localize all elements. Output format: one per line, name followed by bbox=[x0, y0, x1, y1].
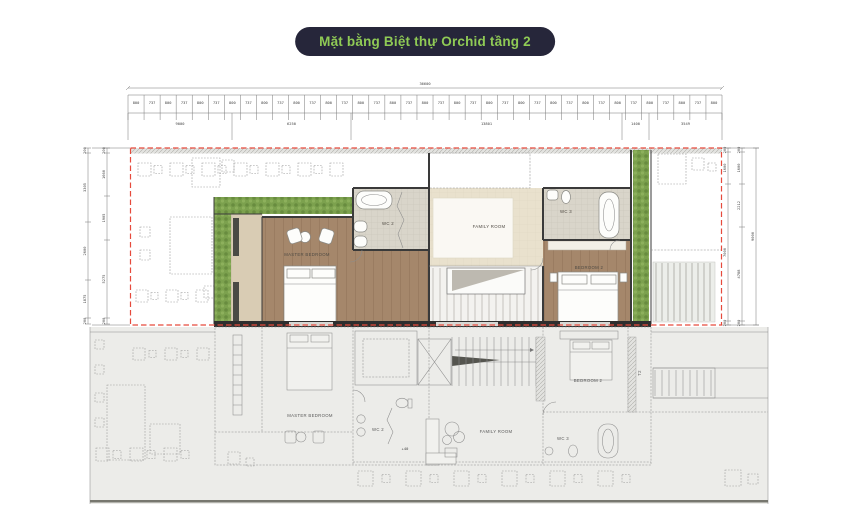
svg-text:737: 737 bbox=[662, 101, 669, 105]
svg-text:737: 737 bbox=[181, 101, 188, 105]
svg-text:6250: 6250 bbox=[287, 122, 296, 126]
svg-text:800: 800 bbox=[422, 101, 429, 105]
svg-text:200: 200 bbox=[737, 147, 741, 154]
svg-text:800: 800 bbox=[486, 101, 493, 105]
hedge-left bbox=[214, 197, 231, 324]
svg-text:737: 737 bbox=[438, 101, 445, 105]
svg-text:1905: 1905 bbox=[102, 214, 106, 223]
svg-text:200: 200 bbox=[83, 147, 87, 154]
label-family-room: FAMILY ROOM bbox=[473, 224, 506, 229]
cad-hatch-strip bbox=[536, 337, 545, 401]
lower-plan-bottom-edge bbox=[90, 500, 768, 503]
svg-text:800: 800 bbox=[518, 101, 525, 105]
svg-text:800: 800 bbox=[357, 101, 364, 105]
svg-text:200: 200 bbox=[102, 147, 106, 154]
cad-label-master-bedroom: MASTER BEDROOM bbox=[287, 413, 333, 418]
svg-text:737: 737 bbox=[470, 101, 477, 105]
label-bedroom2: BEDROOM 2 bbox=[575, 265, 604, 270]
svg-text:1875: 1875 bbox=[83, 295, 87, 304]
planter-box bbox=[708, 163, 716, 171]
floorplan-drawing: 36600 8007378007378007378007378007378007… bbox=[0, 0, 850, 513]
svg-text:9000: 9000 bbox=[176, 122, 185, 126]
svg-text:737: 737 bbox=[245, 101, 252, 105]
svg-text:800: 800 bbox=[582, 101, 589, 105]
floorplan-page: Mặt bằng Biệt thự Orchid tầng 2 bbox=[0, 0, 850, 513]
upper-floorplan-render: MASTER BEDROOM WC 2 FAMILY ROOM WC 3 BED… bbox=[130, 148, 722, 327]
label-wc3: WC 3 bbox=[560, 209, 572, 214]
svg-text:737: 737 bbox=[630, 101, 637, 105]
svg-text:737: 737 bbox=[566, 101, 573, 105]
cad-label-wc2: WC 2 bbox=[372, 427, 384, 432]
svg-text:1400: 1400 bbox=[631, 122, 640, 126]
svg-text:1660: 1660 bbox=[102, 170, 106, 179]
svg-text:3305: 3305 bbox=[83, 183, 87, 192]
lower-floorplan-cad: T2 bbox=[90, 327, 768, 504]
svg-text:737: 737 bbox=[149, 101, 156, 105]
svg-text:13801: 13801 bbox=[481, 122, 492, 126]
right-dimension-chains: 200160070002002001600221247882009000 bbox=[722, 147, 759, 327]
svg-text:800: 800 bbox=[550, 101, 557, 105]
left-dimension-chains: 200330526001875200200166019055275200 bbox=[83, 147, 130, 325]
svg-text:737: 737 bbox=[277, 101, 284, 105]
svg-text:737: 737 bbox=[534, 101, 541, 105]
svg-text:737: 737 bbox=[309, 101, 316, 105]
svg-text:800: 800 bbox=[390, 101, 397, 105]
bedroom2-bed-icon bbox=[550, 272, 627, 322]
svg-text:200: 200 bbox=[83, 318, 87, 325]
svg-text:5275: 5275 bbox=[102, 275, 106, 284]
svg-text:3549: 3549 bbox=[681, 122, 690, 126]
right-context-bed bbox=[658, 154, 686, 184]
svg-text:200: 200 bbox=[723, 147, 727, 154]
svg-text:1600: 1600 bbox=[723, 164, 727, 173]
svg-text:200: 200 bbox=[723, 320, 727, 327]
svg-text:200: 200 bbox=[102, 318, 106, 325]
cad-level-mark: +40 bbox=[402, 447, 409, 451]
planter-box bbox=[692, 158, 704, 170]
svg-text:4788: 4788 bbox=[737, 270, 741, 279]
cad-label-bedroom2: BEDROOM 2 bbox=[574, 378, 603, 383]
cad-label-wc3: WC 3 bbox=[557, 436, 569, 441]
hedge-top bbox=[214, 197, 353, 214]
svg-text:2212: 2212 bbox=[737, 201, 741, 210]
svg-text:2600: 2600 bbox=[83, 247, 87, 256]
svg-text:200: 200 bbox=[737, 320, 741, 327]
svg-text:737: 737 bbox=[374, 101, 381, 105]
wc2-bathtub-icon bbox=[356, 191, 392, 209]
svg-text:737: 737 bbox=[502, 101, 509, 105]
label-wc2: WC 2 bbox=[382, 221, 394, 226]
master-bed-icon bbox=[284, 266, 336, 322]
label-master-bedroom: MASTER BEDROOM bbox=[284, 252, 330, 257]
svg-text:737: 737 bbox=[406, 101, 413, 105]
svg-text:800: 800 bbox=[454, 101, 461, 105]
svg-text:800: 800 bbox=[711, 101, 718, 105]
svg-text:9000: 9000 bbox=[751, 232, 755, 241]
top-small-dims: 8007378007378007378007378007378007378007… bbox=[128, 95, 722, 120]
cad-corridor-strip bbox=[628, 337, 636, 412]
svg-text:7000: 7000 bbox=[723, 248, 727, 257]
cad-label-family-room: FAMILY ROOM bbox=[480, 429, 513, 434]
svg-text:737: 737 bbox=[213, 101, 220, 105]
svg-text:737: 737 bbox=[341, 101, 348, 105]
cad-master-bed-icon bbox=[287, 333, 332, 390]
svg-text:800: 800 bbox=[293, 101, 300, 105]
svg-text:800: 800 bbox=[325, 101, 332, 105]
svg-text:800: 800 bbox=[229, 101, 236, 105]
bedroom2-wardrobe bbox=[548, 241, 626, 250]
corridor-floor bbox=[353, 250, 429, 324]
svg-text:800: 800 bbox=[165, 101, 172, 105]
top-segment-dims: 900062501380114003549 bbox=[128, 113, 722, 140]
svg-text:800: 800 bbox=[261, 101, 268, 105]
svg-text:800: 800 bbox=[133, 101, 140, 105]
svg-text:800: 800 bbox=[197, 101, 204, 105]
label-t2: T2 bbox=[637, 370, 642, 376]
svg-text:800: 800 bbox=[614, 101, 621, 105]
svg-text:800: 800 bbox=[679, 101, 686, 105]
svg-text:1600: 1600 bbox=[737, 164, 741, 173]
top-dimension-chain: 36600 8007378007378007378007378007378007… bbox=[126, 82, 724, 140]
svg-text:737: 737 bbox=[598, 101, 605, 105]
hedge-right bbox=[633, 150, 649, 324]
void-above-family-room bbox=[429, 153, 530, 188]
svg-text:737: 737 bbox=[695, 101, 702, 105]
overall-width-dim: 36600 bbox=[419, 82, 430, 86]
svg-text:800: 800 bbox=[646, 101, 653, 105]
